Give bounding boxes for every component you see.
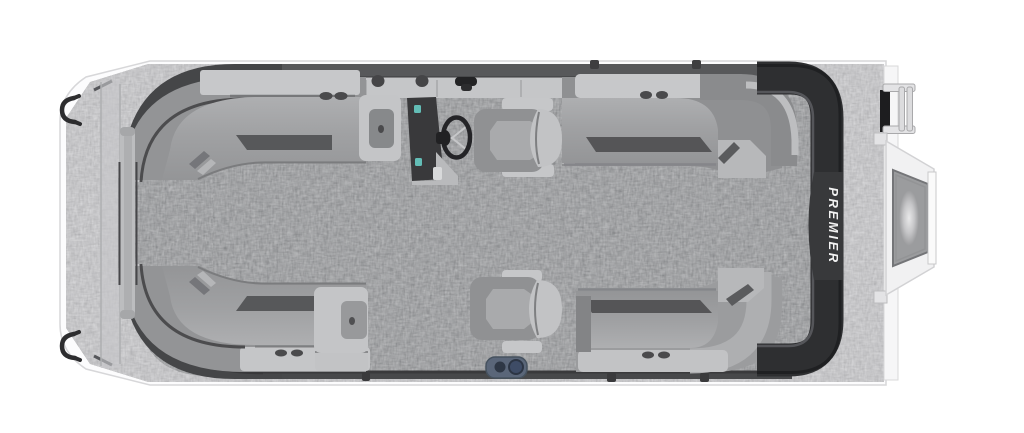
svg-text:PREMIER: PREMIER: [826, 187, 841, 264]
